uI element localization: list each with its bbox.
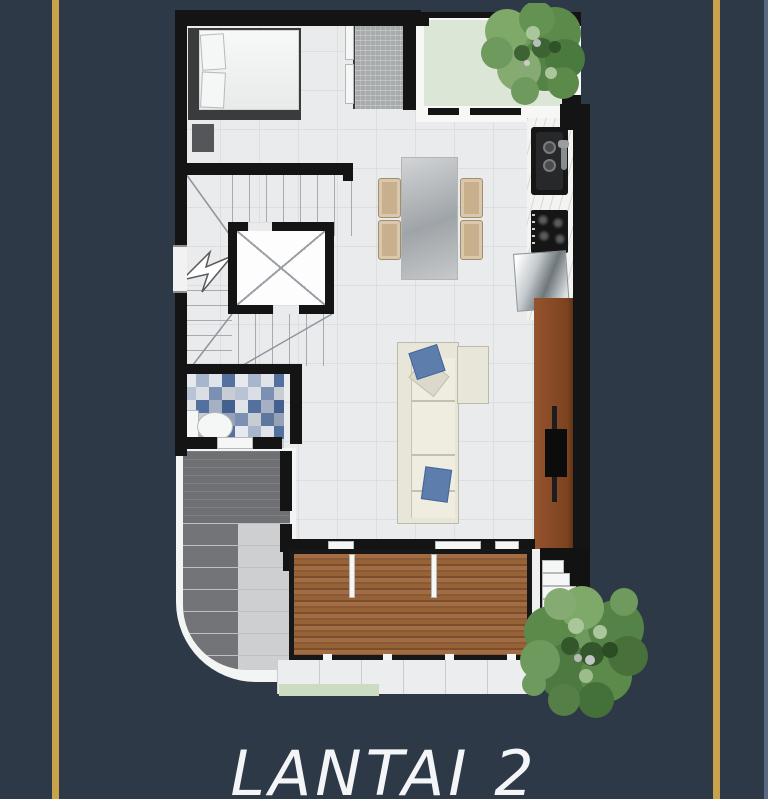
wall-bath-right bbox=[290, 374, 302, 444]
tree-bottom-icon bbox=[506, 568, 662, 724]
wall-bath-bottom-right bbox=[253, 437, 282, 449]
burner-2 bbox=[552, 217, 564, 229]
sink-drain-1 bbox=[543, 141, 556, 154]
window-left bbox=[173, 245, 187, 293]
burner-4 bbox=[554, 233, 566, 245]
dining-table bbox=[401, 157, 458, 280]
deck-post-1 bbox=[349, 554, 355, 598]
wall-top bbox=[175, 10, 421, 26]
dining-chair-3 bbox=[460, 178, 483, 218]
roof-edge-wall-upper bbox=[280, 451, 292, 511]
sofa-chaise bbox=[457, 346, 489, 404]
wall-stub bbox=[343, 163, 353, 181]
void-opening-top bbox=[248, 222, 272, 231]
stove-knobs bbox=[532, 214, 535, 248]
wardrobe-door-upper bbox=[345, 20, 354, 60]
wall-bath-top bbox=[180, 364, 302, 374]
stove bbox=[531, 210, 568, 253]
sofa-seat-divider-2 bbox=[411, 454, 455, 456]
wall-bedroom bbox=[180, 163, 353, 175]
dining-chair-4 bbox=[460, 220, 483, 260]
void-opening-bottom bbox=[273, 305, 299, 314]
grass-strip bbox=[279, 684, 379, 696]
page-edge-strip bbox=[764, 0, 768, 799]
lower-roof bbox=[183, 451, 290, 670]
sofa-pillow-bottom bbox=[421, 466, 452, 502]
wall-wardrobe bbox=[403, 14, 416, 110]
burner-1 bbox=[537, 214, 549, 226]
deck-post-2 bbox=[431, 554, 437, 598]
tree-top-icon bbox=[467, 3, 585, 115]
pillow-top bbox=[200, 33, 226, 71]
pillow-bottom bbox=[200, 71, 226, 108]
balcony-rail-segment-1 bbox=[428, 108, 459, 115]
roof-ribbed-dark bbox=[183, 523, 238, 670]
dining-chair-2 bbox=[378, 220, 401, 260]
burner-3 bbox=[538, 230, 550, 242]
wall-right bbox=[573, 108, 590, 556]
tv bbox=[545, 429, 567, 477]
roof-slab-dark bbox=[183, 451, 290, 523]
sofa-seat-divider-1 bbox=[411, 400, 455, 402]
brochure-page: LANTAI 2 bbox=[0, 0, 768, 799]
wardrobe-door-lower bbox=[345, 64, 354, 104]
wall-left bbox=[175, 10, 187, 456]
bath-door-sill bbox=[217, 437, 253, 449]
faucet-head-icon bbox=[558, 140, 569, 148]
nightstand bbox=[192, 124, 214, 152]
dining-chair-1 bbox=[378, 178, 401, 218]
floor-caption: LANTAI 2 bbox=[0, 743, 768, 799]
gold-rule-left bbox=[52, 0, 59, 799]
gold-rule-right bbox=[713, 0, 720, 799]
void-shaft bbox=[237, 231, 325, 305]
sink-drain-2 bbox=[543, 159, 556, 172]
wardrobe bbox=[353, 15, 403, 109]
wood-deck bbox=[289, 549, 532, 660]
